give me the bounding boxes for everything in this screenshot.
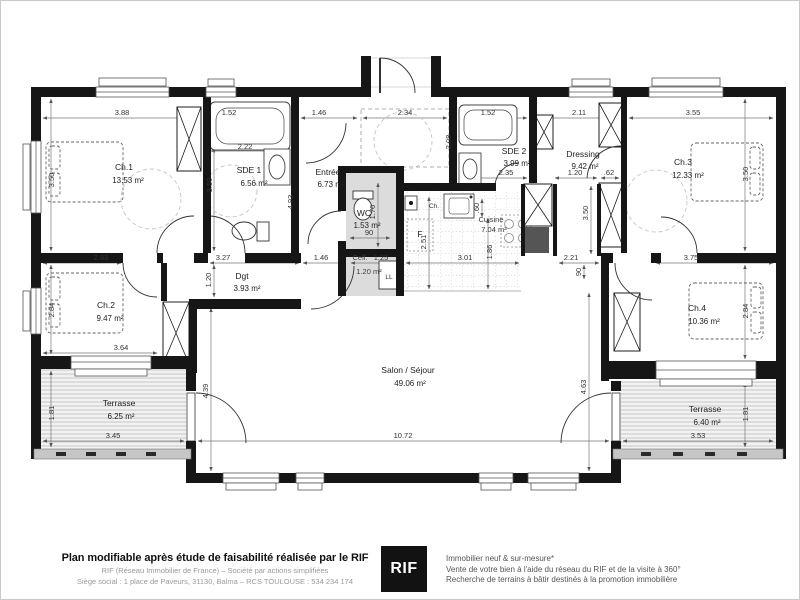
wardrobe-ch1-sde1 bbox=[177, 107, 201, 171]
wardrobe-ch2 bbox=[163, 302, 189, 364]
footer-company-line: RIF (Réseau Immobilier de France) – Soci… bbox=[59, 566, 371, 575]
footer-service-1: Immobilier neuf & sur-mesure* bbox=[446, 554, 776, 565]
room-label-ch1: Ch.1 bbox=[115, 162, 133, 172]
ch1-door-swing bbox=[157, 216, 194, 253]
dim-sde2-top: 1.52 bbox=[481, 108, 496, 117]
dim-corridor-width: 2.21 bbox=[564, 253, 579, 262]
dim-closet-top: 2.34 bbox=[398, 108, 413, 117]
wardrobe-dressing-lower bbox=[599, 183, 623, 247]
label-washer: LL bbox=[385, 274, 393, 281]
terrace-right-door-leaf bbox=[612, 393, 620, 441]
toilet-sde1 bbox=[257, 222, 269, 241]
room-label-sde1: SDE 1 bbox=[237, 165, 262, 175]
footer-service-3: Recherche de terrains à bâtir destinés à… bbox=[446, 575, 776, 586]
dim-ch2-bottom: 3.64 bbox=[114, 343, 129, 352]
dim-dressing-top: 2.11 bbox=[572, 108, 586, 117]
dim-hall-width: 1.46 bbox=[314, 253, 329, 262]
room-area-cell: 1.20 m² bbox=[356, 267, 382, 276]
dim-sde1-top: 1.52 bbox=[222, 108, 237, 117]
rif-logo-text: RIF bbox=[390, 560, 417, 578]
room-area-dgt: 3.93 m² bbox=[233, 284, 260, 293]
room-area-ch1: 13.53 m² bbox=[112, 176, 144, 185]
terrace-left-door-swing bbox=[196, 393, 246, 443]
dim-sde1-height: 3.50 bbox=[205, 178, 214, 193]
dim-ch3-right: 3.50 bbox=[741, 167, 750, 182]
dim-sde2-height: 2.08 bbox=[444, 135, 453, 150]
ch2-door-swing bbox=[123, 263, 157, 297]
wardrobe-corridor bbox=[524, 184, 552, 226]
dim-sde1-bottom: 3.27 bbox=[216, 253, 231, 262]
terrace-railings bbox=[34, 449, 783, 459]
floor-plan-page: 3.88 1.52 1.46 2.34 1.52 2.11 3.55 2.22 … bbox=[0, 0, 800, 600]
room-label-cuisine: Cuisine bbox=[478, 215, 503, 224]
room-label-cell: Cell. bbox=[352, 253, 367, 262]
room-area-entree: 6.73 m² bbox=[317, 180, 344, 189]
wardrobe-ch4 bbox=[614, 293, 640, 351]
room-label-ch4: Ch.4 bbox=[688, 303, 706, 313]
room-area-wc: 1.53 m² bbox=[353, 221, 380, 230]
footer-service-2: Vente de votre bien à l'aide du réseau d… bbox=[446, 565, 776, 576]
dim-ch2-left: 2.84 bbox=[47, 303, 56, 318]
dim-sde2-width: 2.35 bbox=[499, 168, 514, 177]
room-label-entree: Entrée bbox=[315, 167, 340, 177]
room-area-ch4: 10.36 m² bbox=[688, 317, 720, 326]
wardrobe-dressing-right bbox=[599, 103, 623, 147]
room-label-terrasse-left: Terrasse bbox=[103, 398, 136, 408]
room-label-dressing: Dressing bbox=[566, 149, 600, 159]
dim-entree-top: 1.46 bbox=[312, 108, 327, 117]
room-label-dgt: Dgt bbox=[235, 271, 249, 281]
room-area-sde2: 3.99 m² bbox=[503, 159, 530, 168]
room-area-sde1: 6.56 m² bbox=[240, 179, 267, 188]
footer-services: Immobilier neuf & sur-mesure* Vente de v… bbox=[446, 554, 776, 586]
dim-ch4-right: 2.84 bbox=[741, 304, 750, 319]
dim-sde1-inner: 2.22 bbox=[238, 142, 253, 151]
room-label-ch3: Ch.3 bbox=[674, 157, 692, 167]
dim-entree-height: 4.93 bbox=[286, 195, 295, 210]
dim-salon-width: 10.72 bbox=[394, 431, 413, 440]
dim-salon-left: 4.39 bbox=[201, 384, 210, 399]
room-area-terrasse-left: 6.25 m² bbox=[107, 412, 134, 421]
dim-kitchen-width: 3.01 bbox=[458, 253, 473, 262]
dim-terrl-left: 1.81 bbox=[47, 406, 56, 421]
room-label-sde2: SDE 2 bbox=[502, 146, 527, 156]
dim-ch3-top: 3.55 bbox=[686, 108, 701, 117]
footer-headline: Plan modifiable après étude de faisabili… bbox=[59, 552, 371, 564]
dim-terrr-right: 1.81 bbox=[741, 407, 750, 422]
room-area-salon: 49.06 m² bbox=[394, 379, 426, 388]
terrace-right-door-swing bbox=[561, 393, 611, 443]
label-fridge: F bbox=[417, 229, 422, 239]
label-heater: Ch. bbox=[429, 203, 439, 210]
kitchen-sink bbox=[444, 194, 474, 218]
dim-corridor-door: 90 bbox=[574, 268, 583, 276]
entrance-landing bbox=[369, 58, 433, 87]
room-area-dressing: 9.42 m² bbox=[571, 162, 598, 171]
bed-ch1 bbox=[46, 142, 123, 202]
dim-cell-width: 1.25 bbox=[374, 253, 389, 262]
dim-ch1-top: 3.88 bbox=[115, 108, 130, 117]
wardrobe-dressing-left bbox=[535, 115, 553, 149]
dim-dgt-height: 1.20 bbox=[204, 273, 213, 288]
dim-dressing-stub: .62 bbox=[604, 168, 614, 177]
dim-salon-right: 4.63 bbox=[579, 380, 588, 395]
dim-kitchen-open: 1.86 bbox=[485, 245, 494, 260]
turning-circle-entree bbox=[374, 112, 432, 170]
room-area-terrasse-right: 6.40 m² bbox=[693, 418, 720, 427]
floor-plan-drawing: 3.88 1.52 1.46 2.34 1.52 2.11 3.55 2.22 … bbox=[1, 1, 800, 600]
room-label-ch2: Ch.2 bbox=[97, 300, 115, 310]
dim-ch4-top: 3.75 bbox=[684, 253, 699, 262]
room-area-cuisine: 7.04 m² bbox=[481, 225, 507, 234]
room-area-ch3: 12.33 m² bbox=[672, 171, 704, 180]
room-area-ch2: 9.47 m² bbox=[96, 314, 123, 323]
dim-terrr-bottom: 3.53 bbox=[691, 431, 706, 440]
terrace-left-door-leaf bbox=[187, 393, 195, 441]
dim-counter-depth: .60 bbox=[472, 203, 481, 213]
room-label-wc: WC bbox=[357, 208, 371, 218]
dim-ch1-left: 3.50 bbox=[47, 173, 56, 188]
footer-legal: Plan modifiable après étude de faisabili… bbox=[59, 552, 371, 586]
dim-ch1-bottom: 2.83 bbox=[94, 253, 109, 262]
rif-logo: RIF bbox=[381, 546, 427, 592]
dim-terrl-bottom: 3.45 bbox=[106, 431, 121, 440]
room-label-salon: Salon / Séjour bbox=[381, 365, 435, 375]
dim-dressing-height: 3.50 bbox=[581, 206, 590, 221]
entree-door-swing bbox=[306, 123, 346, 163]
footer-address-line: Siège social : 1 place de Paveurs, 31130… bbox=[59, 577, 371, 586]
kitchen-tall-unit bbox=[525, 227, 549, 253]
room-label-terrasse-right: Terrasse bbox=[689, 404, 722, 414]
wc-door-swing bbox=[308, 211, 341, 244]
